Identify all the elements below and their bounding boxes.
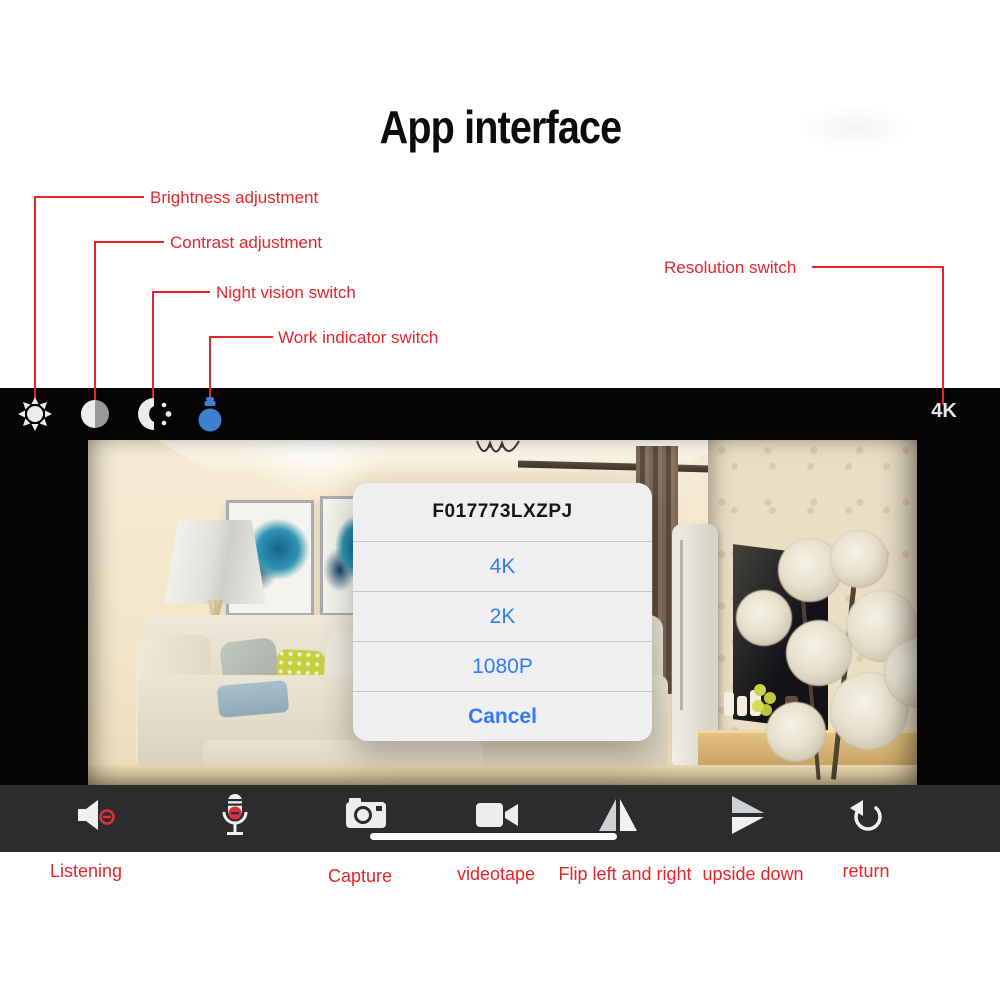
callout-line-work-indicator-v [209,336,211,403]
brightness-button[interactable] [17,396,53,437]
dialog-option-1080p[interactable]: 1080P [353,641,652,691]
callout-line-contrast [94,241,164,243]
label-return: return [842,861,889,882]
resolution-indicator[interactable]: 4K [924,400,964,423]
annotation-contrast: Contrast adjustment [170,233,322,253]
dialog-option-4k[interactable]: 4K [353,541,652,591]
work-indicator-button[interactable] [197,396,223,439]
callout-line-night-vision [152,291,210,293]
callout-line-brightness-v [34,196,36,403]
dialog-cancel-button[interactable]: Cancel [353,691,652,741]
annotation-work-indicator: Work indicator switch [278,328,438,348]
callout-line-night-vision-v [152,291,154,403]
label-videotape: videotape [457,864,535,885]
camera-icon [344,795,388,831]
speaker-muted-icon [74,796,120,834]
watermark-smudge [795,105,915,150]
dialog-option-2k[interactable]: 2K [353,591,652,641]
annotation-night-vision: Night vision switch [216,283,356,303]
callout-line-brightness [34,196,144,198]
video-camera-icon [474,799,520,831]
label-listening: Listening [50,861,122,882]
camera-live-view: F017773LXZPJ 4K 2K 1080P Cancel [88,440,917,785]
capture-button[interactable] [344,795,388,836]
brightness-sun-icon [17,396,53,432]
callout-line-resolution-v [942,266,944,405]
contrast-button[interactable] [77,396,113,437]
intercom-button[interactable] [216,792,254,843]
resolution-dialog: F017773LXZPJ 4K 2K 1080P Cancel [353,483,652,741]
annotation-brightness: Brightness adjustment [150,188,318,208]
dialog-device-id: F017773LXZPJ [353,483,652,541]
videotape-button[interactable] [474,799,520,836]
callout-line-resolution [812,266,944,268]
callout-line-work-indicator [209,336,273,338]
listening-button[interactable] [74,796,120,839]
microphone-muted-icon [216,792,254,838]
contrast-circle-icon [77,396,113,432]
night-vision-icon [133,396,173,432]
callout-line-contrast-v [94,241,96,403]
label-upside-down: upside down [702,864,803,885]
label-capture: Capture [328,866,392,887]
return-arrow-icon [848,797,886,833]
label-flip: Flip left and right [558,864,691,885]
annotation-resolution: Resolution switch [664,258,796,278]
work-indicator-bulb-icon [197,396,223,434]
timeline-progress-bar [370,833,617,840]
app-interface-page: App interface Brightness adjustment Cont… [0,0,1000,1000]
upside-down-icon [729,793,767,837]
return-button[interactable] [848,797,886,838]
flip-vertical-button[interactable] [726,796,770,839]
night-vision-button[interactable] [133,396,173,437]
flip-left-right-icon [596,796,640,834]
